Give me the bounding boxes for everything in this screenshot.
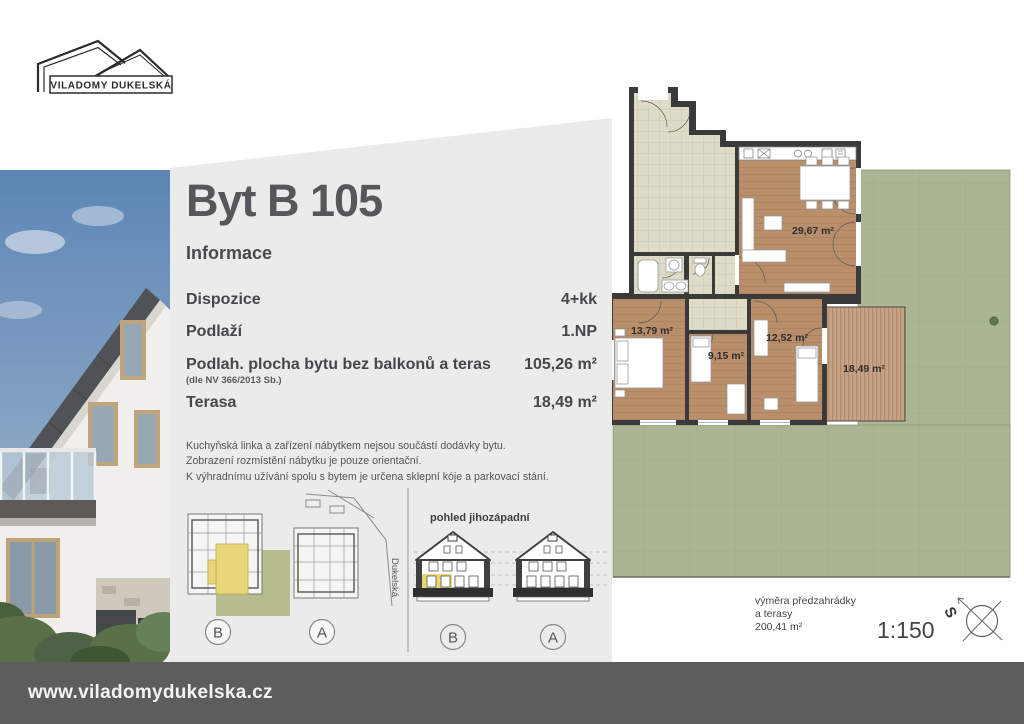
balcony	[0, 448, 96, 526]
dining-table	[800, 166, 850, 200]
elevation-view: pohled jihozápadní	[406, 486, 612, 656]
floor-plan: 18,49 m²	[612, 85, 1024, 660]
footer-url-link[interactable]: www.viladomydukelska.cz	[28, 682, 273, 704]
spec-label: Podlaží	[186, 323, 242, 341]
apartment-title: Byt B 105	[186, 178, 597, 223]
brand-logo: VILADOMY DUKELSKÁ	[28, 26, 188, 122]
spec-value: 105,26 m²	[524, 356, 597, 374]
svg-text:B: B	[213, 624, 223, 641]
bedroom1-area-label: 13,79 m²	[631, 325, 674, 337]
elevation-house-b	[413, 532, 493, 601]
highlighted-apartment	[216, 544, 248, 594]
desk	[727, 384, 745, 414]
site-building-a	[294, 528, 358, 598]
spec-sublabel: (dle NV 366/2013 Sb.)	[186, 375, 491, 386]
site-plan: Dukelská B A	[178, 488, 404, 654]
toilet	[694, 258, 706, 263]
spec-row-terasa: Terasa 18,49 m²	[186, 394, 597, 412]
svg-text:A: A	[317, 624, 327, 641]
spec-row-podlazi: Podlaží 1.NP	[186, 323, 597, 341]
bedroom3-area-label: 12,52 m²	[766, 332, 809, 344]
elevation-a-marker: A	[541, 625, 566, 650]
spec-value: 1.NP	[561, 323, 597, 341]
spec-value: 4+kk	[561, 291, 597, 309]
garden-note-line1: výměra předzahrádky	[755, 595, 857, 607]
sink	[664, 282, 674, 290]
svg-text:A: A	[548, 629, 558, 646]
footer-bar: www.viladomydukelska.cz	[0, 662, 1024, 724]
disclaimer: Kuchyňská linka a zařízení nábytkem nejs…	[186, 439, 597, 487]
spec-row-dispozice: Dispozice 4+kk	[186, 291, 597, 309]
elevation-b-marker: B	[441, 625, 466, 650]
garden-note-line2: a terasy	[755, 608, 793, 620]
spec-label: Podlah. plocha bytu bez balkonů a teras	[186, 356, 491, 373]
site-building-b	[188, 514, 262, 594]
section-informace: Informace	[186, 243, 597, 264]
logo-text: VILADOMY DUKELSKÁ	[50, 79, 171, 92]
tv-bench	[784, 283, 830, 292]
spec-row-plocha: Podlah. plocha bytu bez balkonů a teras …	[186, 356, 597, 386]
brochure-page: VILADOMY DUKELSKÁ	[0, 0, 1024, 724]
bathtub	[638, 260, 658, 292]
living-area-label: 29,67 m²	[792, 225, 835, 237]
compass-rose	[958, 598, 1002, 641]
spec-label: Dispozice	[186, 291, 261, 309]
svg-text:B: B	[448, 629, 458, 646]
terrace-area-label: 18,49 m²	[843, 363, 886, 375]
disclaimer-line-1: Kuchyňská linka a zařízení nábytkem nejs…	[186, 439, 597, 455]
disclaimer-line-3: K výhradnímu užívání spolu s bytem je ur…	[186, 470, 597, 486]
sofa	[742, 198, 754, 254]
spec-label: Terasa	[186, 394, 236, 412]
elevation-title: pohled jihozápadní	[430, 512, 531, 524]
corridor	[689, 299, 747, 330]
garden-note-line3: 200,41 m²	[755, 621, 803, 633]
bedroom2-area-label: 9,15 m²	[708, 350, 745, 362]
spec-value: 18,49 m²	[533, 394, 597, 412]
spec-rows: Dispozice 4+kk Podlaží 1.NP Podlah. ploc…	[186, 291, 597, 413]
scale-label: 1:150	[877, 617, 935, 643]
street-label: Dukelská	[389, 558, 400, 598]
shrub	[990, 317, 998, 325]
terrace-deck: 18,49 m²	[823, 307, 905, 421]
entrance-door	[638, 87, 668, 100]
elevation-house-a	[513, 532, 593, 601]
garden-area-note: výměra předzahrádky a terasy 200,41 m²	[755, 595, 857, 633]
site-building-b-marker: B	[206, 620, 231, 645]
north-letter: S	[940, 604, 960, 620]
disclaimer-line-2: Zobrazení rozmístění nábytku je pouze or…	[186, 454, 597, 470]
building-photo	[0, 170, 172, 662]
site-building-a-marker: A	[310, 620, 335, 645]
